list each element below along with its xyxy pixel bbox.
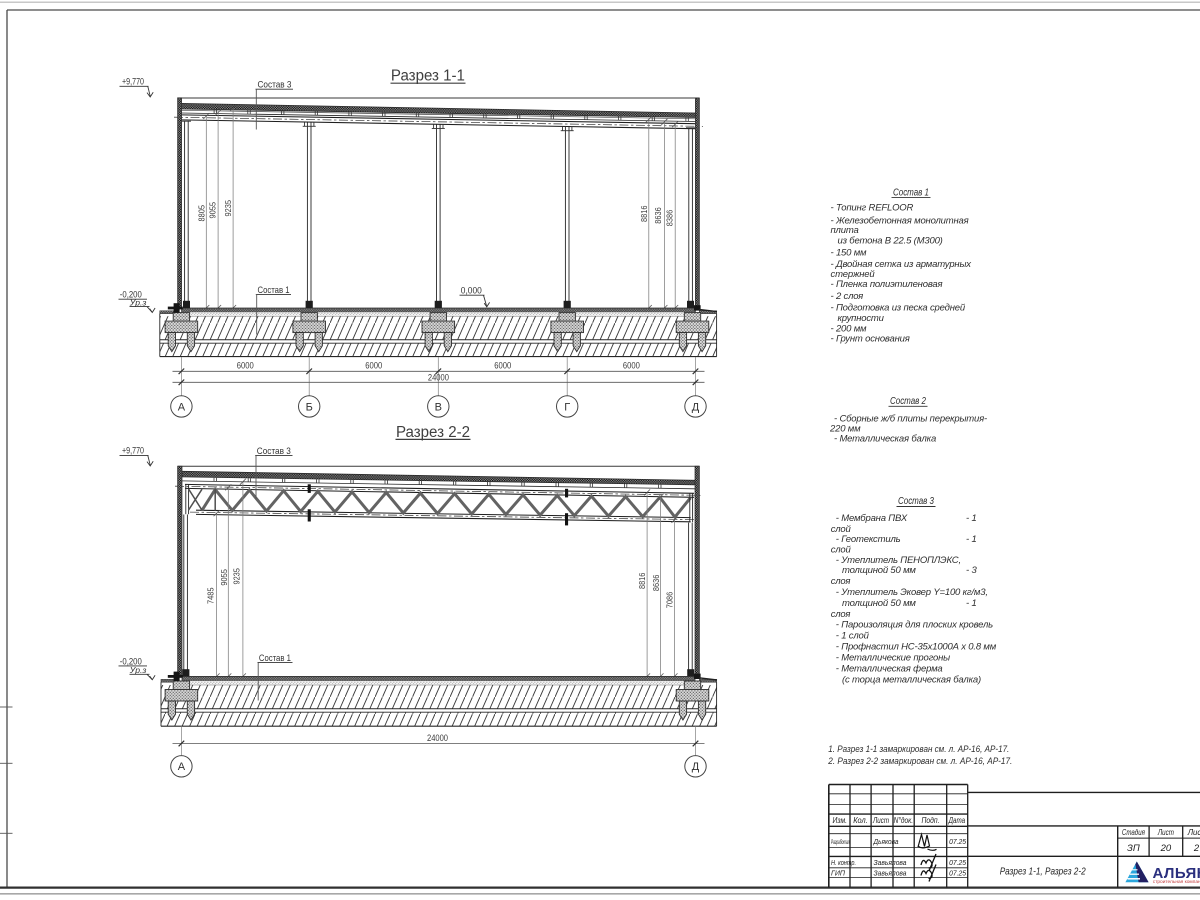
svg-text:- Грунт основания: - Грунт основания xyxy=(831,334,910,345)
svg-text:Н. контр.: Н. контр. xyxy=(831,858,856,867)
svg-text:+9,770: +9,770 xyxy=(122,446,144,456)
svg-text:- Мембрана ПВХ: - Мембрана ПВХ xyxy=(836,513,908,524)
svg-text:0,000: 0,000 xyxy=(461,285,482,295)
svg-text:Д: Д xyxy=(692,401,700,413)
svg-text:Дьякова: Дьякова xyxy=(873,837,899,846)
svg-text:6000: 6000 xyxy=(494,361,511,371)
svg-text:2: 2 xyxy=(1193,843,1200,854)
svg-text:8636: 8636 xyxy=(652,574,661,591)
svg-text:толщиной 50 мм: толщиной 50 мм xyxy=(842,565,916,576)
svg-text:- 2 слоя: - 2 слоя xyxy=(831,291,864,302)
svg-text:07.25: 07.25 xyxy=(949,858,967,867)
svg-text:Лист: Лист xyxy=(1157,828,1174,837)
svg-text:ГИП: ГИП xyxy=(831,868,846,877)
svg-text:9235: 9235 xyxy=(224,200,233,217)
svg-text:В: В xyxy=(435,401,442,413)
svg-text:Стадия: Стадия xyxy=(1122,828,1146,837)
svg-text:8386: 8386 xyxy=(666,209,675,226)
svg-text:Состав 2: Состав 2 xyxy=(890,396,926,407)
svg-text:- Подготовка из песка средней: - Подготовка из песка средней xyxy=(831,302,966,313)
svg-text:9055: 9055 xyxy=(220,569,229,586)
svg-text:- Металлическая балка: - Металлическая балка xyxy=(834,434,936,445)
svg-text:- Металлическая ферма: - Металлическая ферма xyxy=(836,663,943,674)
svg-text:Разрез 1-1, Разрез 2-2: Разрез 1-1, Разрез 2-2 xyxy=(1000,867,1086,878)
svg-text:20: 20 xyxy=(1160,843,1172,854)
svg-text:Изм.: Изм. xyxy=(833,816,848,825)
svg-text:- Металлические прогоны: - Металлические прогоны xyxy=(836,652,950,663)
svg-text:8636: 8636 xyxy=(654,207,663,224)
svg-text:слоя: слоя xyxy=(831,576,851,587)
svg-text:Состав 3: Состав 3 xyxy=(258,80,292,90)
svg-text:Ур.з: Ур.з xyxy=(129,665,147,675)
svg-text:07.25: 07.25 xyxy=(949,868,967,877)
svg-text:- Пароизоляция для плоских кро: - Пароизоляция для плоских кровель xyxy=(836,619,993,630)
svg-text:8816: 8816 xyxy=(638,572,647,589)
svg-text:2. Разрез 2-2 замаркирован см.: 2. Разрез 2-2 замаркирован см. л. АР-16,… xyxy=(827,756,1012,766)
svg-text:- 1: - 1 xyxy=(966,534,977,545)
svg-text:24000: 24000 xyxy=(427,733,448,743)
svg-text:Кол.: Кол. xyxy=(853,816,868,825)
svg-text:Б: Б xyxy=(306,401,313,413)
svg-text:Д: Д xyxy=(692,761,700,773)
svg-text:6000: 6000 xyxy=(237,361,254,371)
svg-text:8805: 8805 xyxy=(198,205,207,222)
svg-text:6000: 6000 xyxy=(365,361,382,371)
svg-text:Состав 1: Состав 1 xyxy=(258,285,290,295)
svg-text:6000: 6000 xyxy=(623,361,640,371)
svg-text:Разрез 1-1: Разрез 1-1 xyxy=(391,68,465,85)
svg-text:- 150 мм: - 150 мм xyxy=(831,248,868,259)
svg-text:Ур.з: Ур.з xyxy=(129,297,147,307)
svg-text:Состав 1: Состав 1 xyxy=(893,187,929,198)
svg-text:- Утеплитель Эковер Y=100 кг/м: - Утеплитель Эковер Y=100 кг/м3, xyxy=(836,587,988,598)
svg-text:7485: 7485 xyxy=(207,587,216,604)
svg-text:1. Разрез 1-1 замаркирован см.: 1. Разрез 1-1 замаркирован см. л. АР-16,… xyxy=(828,744,1009,754)
svg-text:из бетона В 22.5 (М300): из бетона В 22.5 (М300) xyxy=(838,236,943,247)
svg-text:- 1 слой: - 1 слой xyxy=(836,630,870,641)
svg-text:07.25: 07.25 xyxy=(949,837,967,846)
svg-text:Подп.: Подп. xyxy=(922,816,940,825)
svg-text:- Профнастил НС-35х1000А х 0.8: - Профнастил НС-35х1000А х 0.8 мм xyxy=(836,641,997,652)
svg-text:- 1: - 1 xyxy=(966,598,977,609)
svg-text:Разработал: Разработал xyxy=(831,839,850,846)
svg-text:А: А xyxy=(178,401,186,413)
svg-text:(с торца металлическая балка): (с торца металлическая балка) xyxy=(842,674,981,685)
svg-text:плита: плита xyxy=(831,225,859,236)
svg-text:ЗП: ЗП xyxy=(1127,843,1140,854)
svg-text:- 1: - 1 xyxy=(966,513,977,524)
svg-text:Завьялова: Завьялова xyxy=(874,868,907,877)
svg-text:N°док.: N°док. xyxy=(894,816,914,825)
svg-text:7086: 7086 xyxy=(665,591,674,608)
svg-text:24000: 24000 xyxy=(428,373,449,383)
svg-text:Состав 3: Состав 3 xyxy=(257,446,291,456)
svg-text:Завьялова: Завьялова xyxy=(874,858,907,867)
svg-text:Г: Г xyxy=(564,401,570,413)
svg-text:9055: 9055 xyxy=(209,202,218,219)
svg-text:Состав 3: Состав 3 xyxy=(898,496,934,507)
svg-text:- Двойная сетка из арматурных: - Двойная сетка из арматурных xyxy=(831,259,973,270)
svg-text:строительная компания: строительная компания xyxy=(1153,880,1200,885)
svg-text:А: А xyxy=(178,761,186,773)
svg-text:толщиной 50 мм: толщиной 50 мм xyxy=(842,598,916,609)
svg-text:+9,770: +9,770 xyxy=(122,76,144,86)
svg-text:- Топинг REFLOOR: - Топинг REFLOOR xyxy=(831,202,914,213)
svg-text:крупности: крупности xyxy=(838,313,885,324)
svg-text:- Пленка полиэтиленовая: - Пленка полиэтиленовая xyxy=(831,279,943,290)
svg-text:9235: 9235 xyxy=(232,568,241,585)
svg-text:- 3: - 3 xyxy=(966,565,977,576)
svg-text:- Геотекстиль: - Геотекстиль xyxy=(836,534,901,545)
svg-text:Лис: Лис xyxy=(1187,828,1200,837)
svg-text:Лист: Лист xyxy=(872,816,889,825)
svg-text:Дата: Дата xyxy=(948,816,966,825)
svg-text:Состав 1: Состав 1 xyxy=(259,653,291,663)
svg-text:8816: 8816 xyxy=(640,205,649,222)
svg-text:Разрез 2-2: Разрез 2-2 xyxy=(396,424,470,441)
